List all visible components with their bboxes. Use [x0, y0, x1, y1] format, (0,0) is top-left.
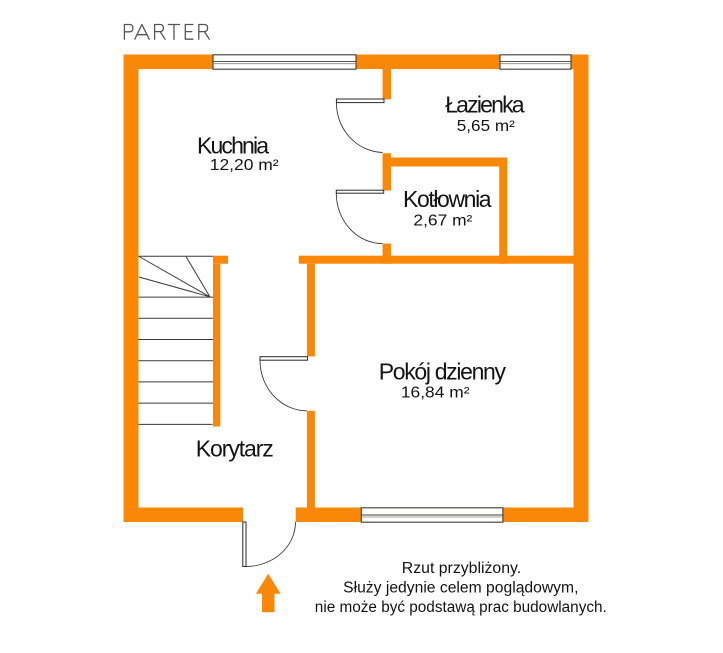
svg-text:Łazienka: Łazienka [445, 92, 525, 118]
svg-text:2,67 m²: 2,67 m² [413, 213, 472, 230]
svg-text:5,65 m²: 5,65 m² [457, 118, 515, 135]
svg-text:Pokój dzienny: Pokój dzienny [379, 359, 507, 385]
svg-text:Rzut przybliżony.: Rzut przybliżony. [402, 560, 521, 577]
svg-text:nie może być podstawą prac bud: nie może być podstawą prac budowlanych. [315, 599, 607, 616]
svg-text:16,84 m²: 16,84 m² [401, 384, 470, 401]
svg-text:Kotłownia: Kotłownia [403, 186, 492, 212]
svg-text:Korytarz: Korytarz [196, 435, 274, 461]
svg-text:Służy jedynie celem poglądowym: Służy jedynie celem poglądowym, [343, 580, 578, 597]
svg-text:Kuchnia: Kuchnia [197, 133, 269, 159]
svg-text:12,20 m²: 12,20 m² [210, 157, 279, 174]
